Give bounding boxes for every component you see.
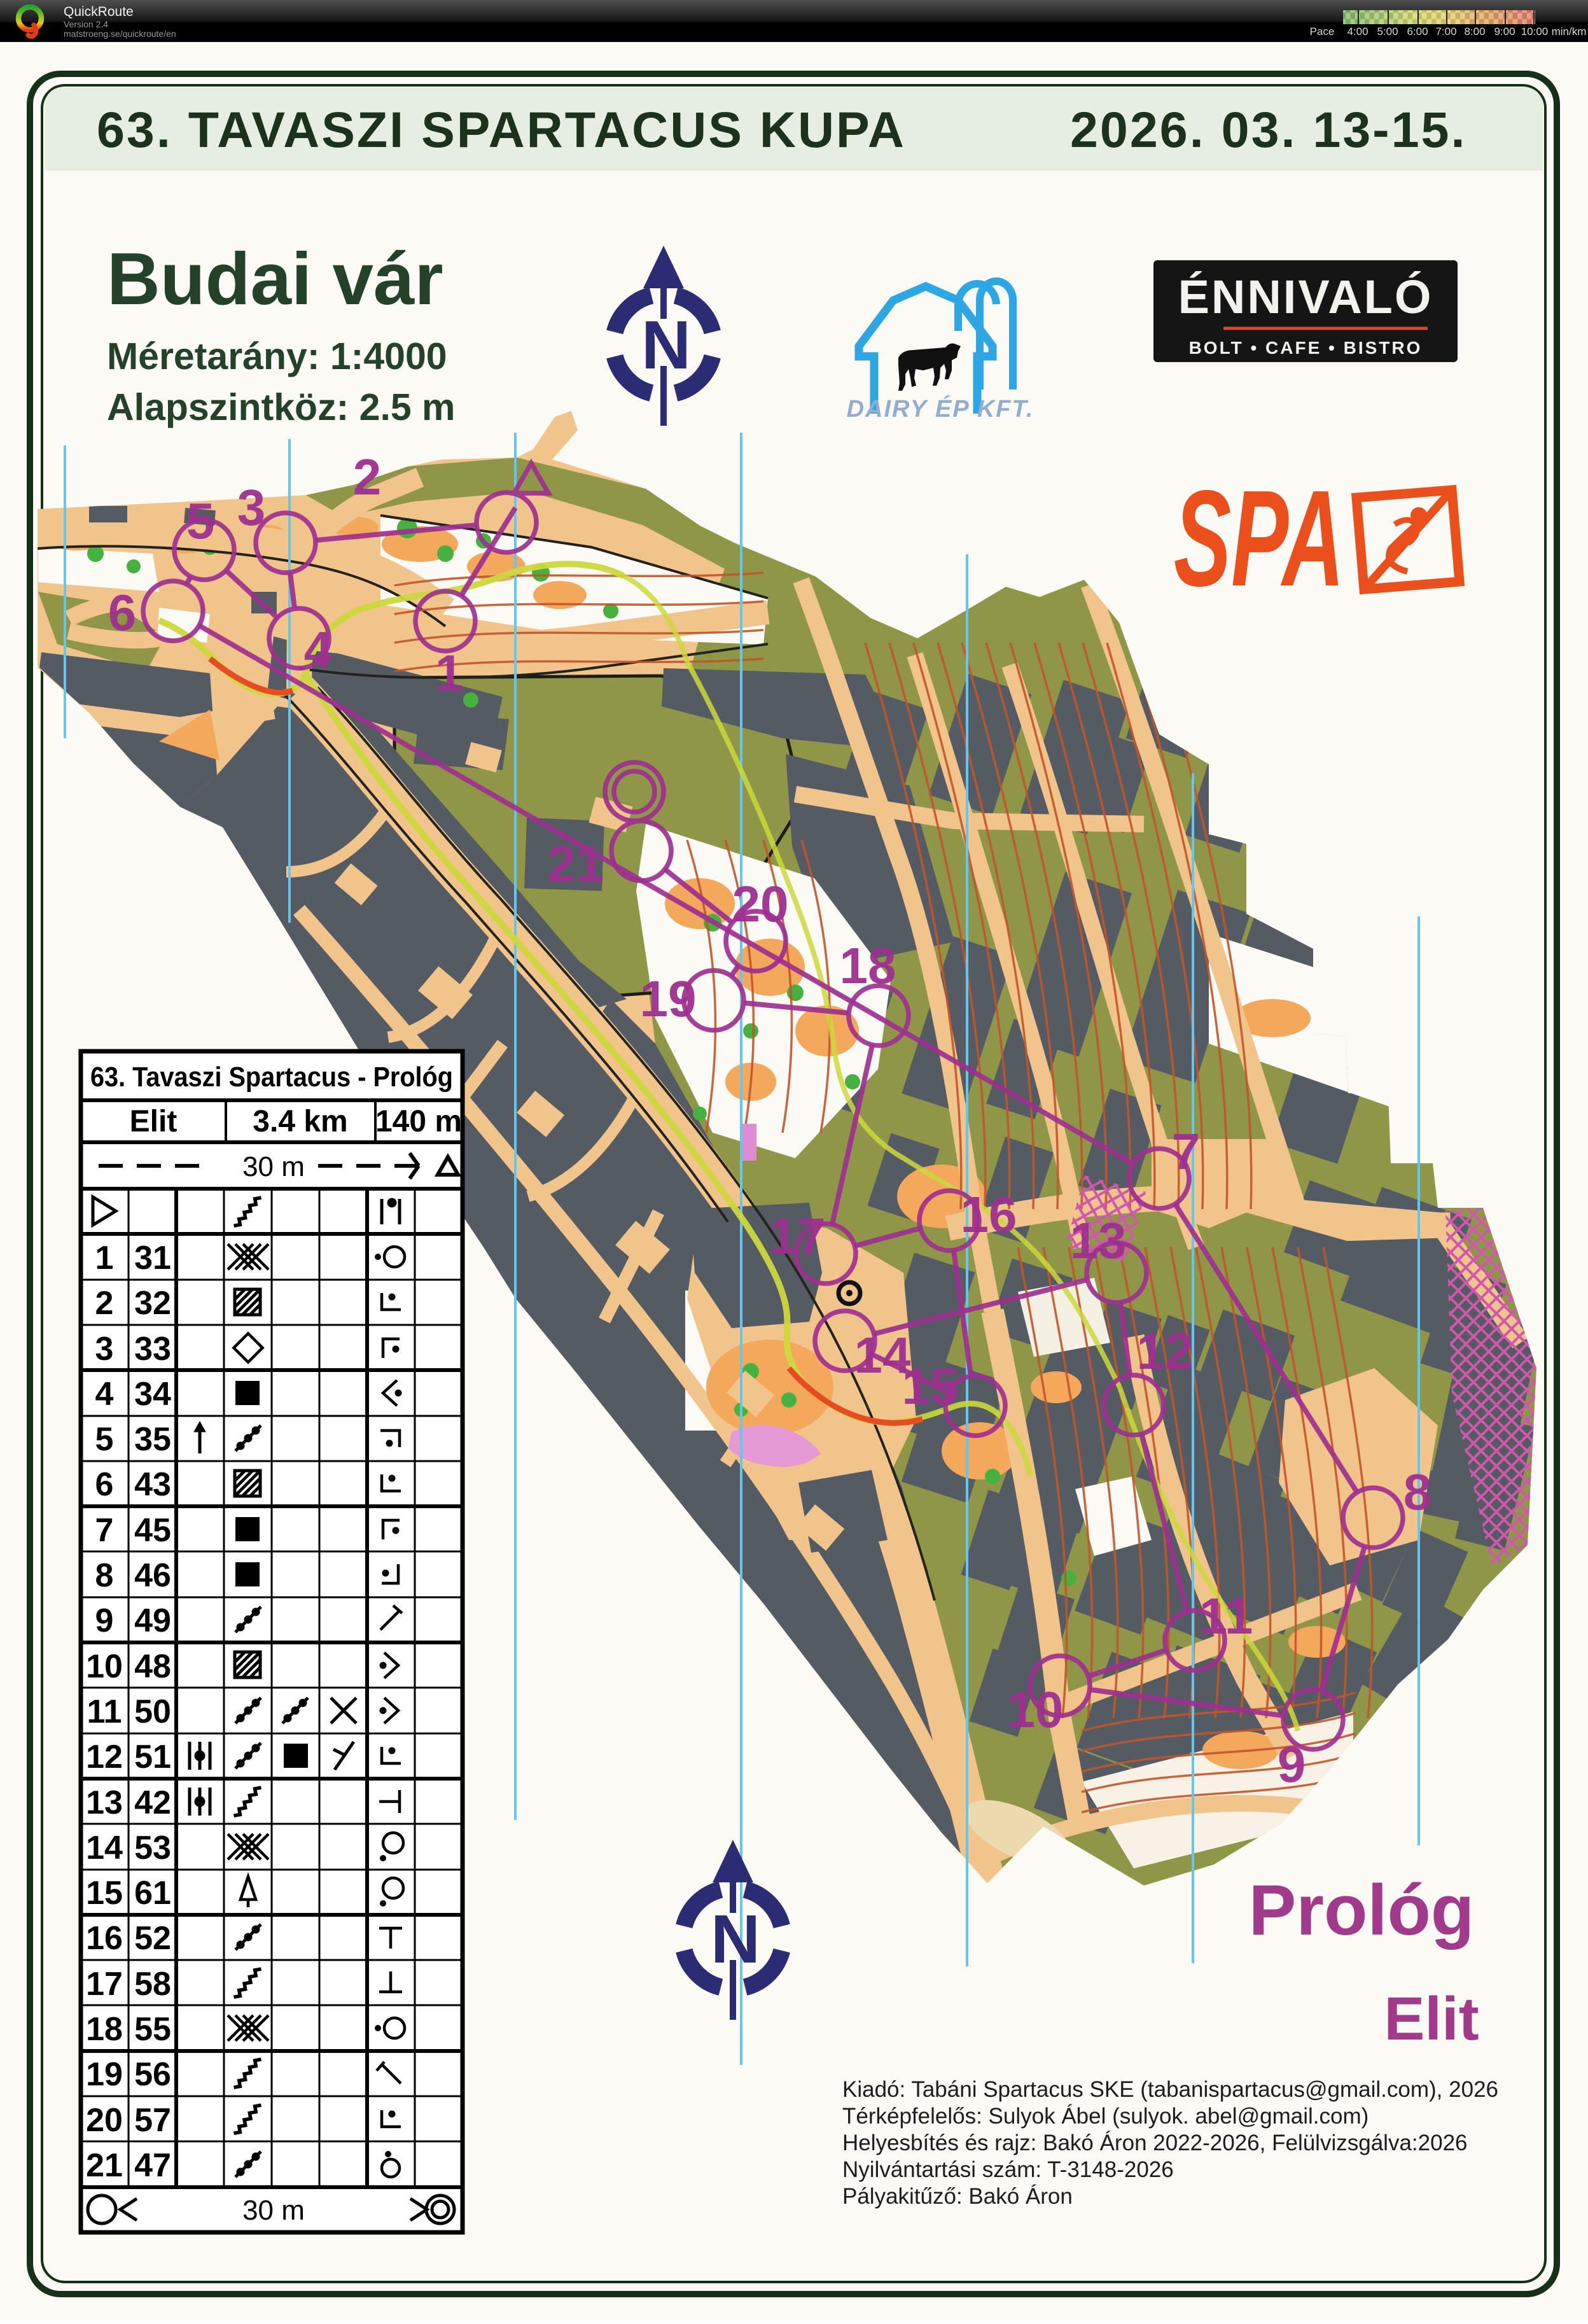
svg-text:52: 52 xyxy=(134,1920,171,1957)
svg-text:10:00: 10:00 xyxy=(1521,25,1549,38)
svg-text:55: 55 xyxy=(134,2011,171,2048)
svg-text:Elit: Elit xyxy=(1384,1985,1479,2053)
svg-text:63. TAVASZI SPARTACUS KUPA: 63. TAVASZI SPARTACUS KUPA xyxy=(97,101,906,158)
svg-text:43: 43 xyxy=(134,1466,171,1503)
svg-text:20: 20 xyxy=(732,876,789,932)
svg-text:58: 58 xyxy=(134,1966,171,2003)
svg-text:8: 8 xyxy=(95,1557,114,1594)
svg-text:10: 10 xyxy=(86,1648,123,1685)
svg-text:20: 20 xyxy=(86,2102,123,2139)
svg-text:61: 61 xyxy=(134,1875,171,1912)
svg-text:Pályakitűző: Bakó Áron: Pályakitűző: Bakó Áron xyxy=(842,2184,1073,2209)
svg-text:9:00: 9:00 xyxy=(1494,25,1515,38)
svg-text:1: 1 xyxy=(95,1240,114,1277)
svg-text:Alapszintköz: 2.5 m: Alapszintköz: 2.5 m xyxy=(107,386,456,428)
svg-text:Prológ: Prológ xyxy=(1249,1870,1475,1950)
svg-text:6: 6 xyxy=(108,584,137,641)
svg-text:Méretarány: 1:4000: Méretarány: 1:4000 xyxy=(107,335,447,377)
svg-text:8: 8 xyxy=(1403,1464,1432,1520)
svg-text:11: 11 xyxy=(1199,1588,1253,1644)
svg-text:4: 4 xyxy=(304,621,333,678)
svg-text:16: 16 xyxy=(961,1186,1017,1243)
svg-text:11: 11 xyxy=(87,1693,122,1730)
svg-text:3: 3 xyxy=(237,479,266,536)
svg-text:18: 18 xyxy=(840,937,896,994)
svg-text:7: 7 xyxy=(1172,1123,1201,1180)
svg-text:Version 2.4: Version 2.4 xyxy=(64,19,108,29)
svg-text:Pace: Pace xyxy=(1310,25,1335,38)
svg-text:30 m: 30 m xyxy=(242,2195,305,2226)
svg-text:min/km: min/km xyxy=(1552,25,1587,38)
svg-text:21: 21 xyxy=(548,836,604,892)
svg-text:19: 19 xyxy=(640,970,697,1027)
svg-text:47: 47 xyxy=(134,2147,171,2184)
svg-text:13: 13 xyxy=(86,1784,123,1821)
svg-text:Kiadó: Tabáni Spartacus SKE (t: Kiadó: Tabáni Spartacus SKE (tabanispart… xyxy=(842,2077,1498,2102)
svg-text:3.4 km: 3.4 km xyxy=(253,1105,347,1138)
svg-text:42: 42 xyxy=(134,1784,171,1821)
svg-text:18: 18 xyxy=(86,2011,123,2048)
svg-text:7:00: 7:00 xyxy=(1435,25,1456,38)
svg-text:35: 35 xyxy=(134,1421,171,1458)
svg-text:14: 14 xyxy=(86,1830,123,1866)
svg-text:Helyesbítés és rajz: Bakó Áron: Helyesbítés és rajz: Bakó Áron 2022-2026… xyxy=(842,2131,1468,2155)
svg-text:15: 15 xyxy=(902,1358,959,1415)
svg-text:5: 5 xyxy=(186,493,215,549)
svg-text:30 m: 30 m xyxy=(242,1151,305,1182)
svg-text:Budai vár: Budai vár xyxy=(107,237,443,320)
svg-text:2026. 03. 13-15.: 2026. 03. 13-15. xyxy=(1070,101,1466,158)
svg-text:9: 9 xyxy=(95,1602,114,1639)
svg-text:Elit: Elit xyxy=(130,1105,178,1138)
svg-text:1: 1 xyxy=(435,645,464,701)
svg-text:51: 51 xyxy=(134,1739,171,1775)
svg-text:34: 34 xyxy=(134,1376,171,1413)
svg-text:45: 45 xyxy=(134,1512,171,1549)
svg-text:5: 5 xyxy=(95,1421,114,1458)
svg-text:21: 21 xyxy=(86,2147,123,2184)
svg-text:6:00: 6:00 xyxy=(1407,25,1428,38)
svg-text:49: 49 xyxy=(134,1602,171,1639)
svg-text:56: 56 xyxy=(134,2056,171,2093)
svg-text:46: 46 xyxy=(134,1557,171,1594)
svg-text:12: 12 xyxy=(86,1739,123,1775)
svg-text:48: 48 xyxy=(134,1648,171,1685)
svg-text:Nyilvántartási szám: T-3148-20: Nyilvántartási szám: T-3148-2026 xyxy=(842,2157,1174,2182)
svg-text:63. Tavaszi Spartacus - Prológ: 63. Tavaszi Spartacus - Prológ xyxy=(90,1061,453,1093)
svg-text:matstroeng.se/quickroute/en: matstroeng.se/quickroute/en xyxy=(64,29,176,39)
svg-text:15: 15 xyxy=(86,1875,123,1912)
svg-text:5:00: 5:00 xyxy=(1377,25,1398,38)
svg-text:10: 10 xyxy=(1007,1681,1064,1738)
svg-text:13: 13 xyxy=(1070,1212,1127,1269)
svg-text:DAIRY ÉP KFT.: DAIRY ÉP KFT. xyxy=(847,395,1034,423)
svg-text:4:00: 4:00 xyxy=(1347,25,1368,38)
svg-text:N: N xyxy=(711,1900,760,1977)
svg-text:53: 53 xyxy=(134,1830,171,1866)
svg-text:N: N xyxy=(641,306,691,383)
svg-text:19: 19 xyxy=(86,2056,123,2093)
svg-text:BOLT • CAFE • BISTRO: BOLT • CAFE • BISTRO xyxy=(1189,338,1423,358)
svg-text:QuickRoute: QuickRoute xyxy=(64,4,134,19)
svg-text:3: 3 xyxy=(95,1331,114,1368)
svg-text:ÉNNIVALÓ: ÉNNIVALÓ xyxy=(1178,270,1433,323)
svg-text:9: 9 xyxy=(1278,1736,1306,1793)
svg-text:6: 6 xyxy=(95,1466,114,1503)
svg-text:2: 2 xyxy=(353,449,382,505)
svg-text:7: 7 xyxy=(95,1512,114,1549)
svg-text:32: 32 xyxy=(134,1285,171,1322)
svg-text:50: 50 xyxy=(134,1693,171,1730)
svg-text:57: 57 xyxy=(134,2102,171,2139)
svg-text:SPA: SPA xyxy=(1174,461,1344,615)
svg-text:8:00: 8:00 xyxy=(1464,25,1485,38)
svg-text:2: 2 xyxy=(95,1285,114,1322)
svg-text:16: 16 xyxy=(86,1920,123,1957)
svg-text:31: 31 xyxy=(134,1240,171,1277)
svg-text:4: 4 xyxy=(95,1376,114,1413)
svg-text:17: 17 xyxy=(769,1208,826,1264)
svg-text:33: 33 xyxy=(134,1331,171,1368)
svg-text:Térképfelelős: Sulyok Ábel (su: Térképfelelős: Sulyok Ábel (sulyok. abel… xyxy=(842,2104,1369,2129)
svg-text:12: 12 xyxy=(1137,1323,1194,1380)
svg-text:140 m: 140 m xyxy=(375,1105,462,1138)
svg-text:17: 17 xyxy=(86,1966,123,2003)
